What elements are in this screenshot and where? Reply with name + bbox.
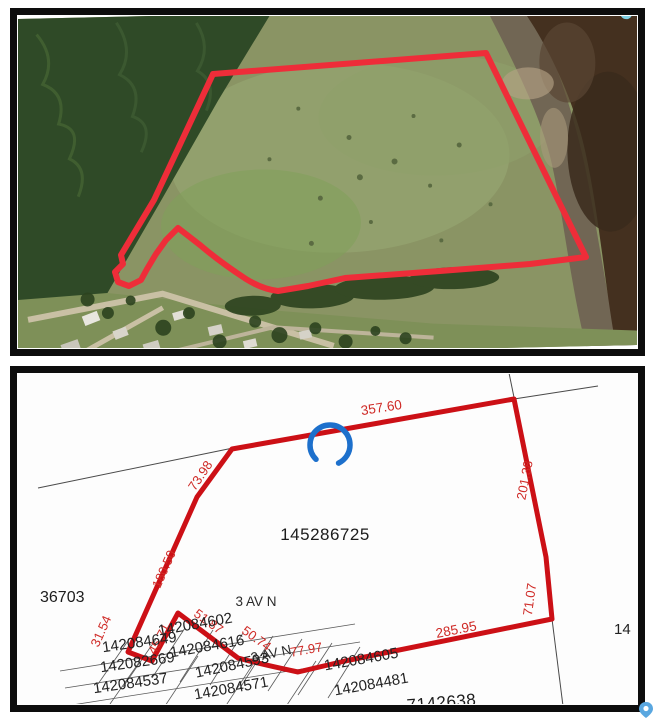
aerial-photo	[10, 8, 645, 356]
street-label-1: 3 AV N	[235, 594, 276, 609]
parcel-14: 14	[614, 621, 631, 638]
parcel-left: 36703	[40, 589, 85, 606]
map-pin-icon	[638, 701, 654, 719]
plat-map-panel: 357.60 73.98 180.50 201.38 71.07 285.95 …	[10, 366, 645, 712]
aerial-photo-panel	[10, 8, 645, 356]
page: 357.60 73.98 180.50 201.38 71.07 285.95 …	[0, 0, 654, 720]
parcel-main: 145286725	[280, 525, 370, 544]
